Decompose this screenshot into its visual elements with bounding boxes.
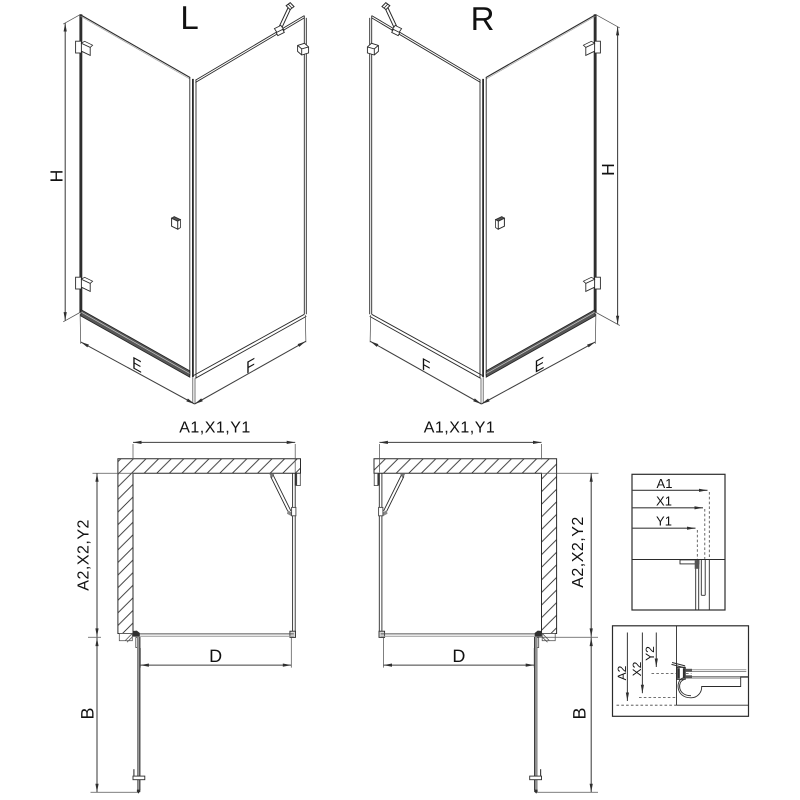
svg-text:Y1: Y1 [656, 514, 672, 529]
svg-text:F: F [422, 354, 431, 378]
svg-text:F: F [246, 354, 255, 378]
svg-text:D: D [209, 646, 222, 666]
svg-text:E: E [535, 353, 545, 377]
svg-text:E: E [132, 353, 142, 377]
svg-text:A1,X1,Y1: A1,X1,Y1 [179, 420, 251, 437]
svg-text:L: L [180, 0, 198, 36]
svg-text:A2,X2,Y2: A2,X2,Y2 [570, 516, 587, 588]
svg-text:A2,X2,Y2: A2,X2,Y2 [76, 519, 93, 591]
svg-text:B: B [570, 707, 590, 719]
svg-text:H: H [598, 163, 618, 176]
svg-text:Y2: Y2 [643, 646, 657, 661]
svg-text:D: D [452, 646, 465, 666]
svg-text:X1: X1 [656, 494, 672, 509]
svg-text:A1: A1 [657, 476, 673, 491]
svg-text:R: R [471, 0, 495, 37]
svg-text:A1,X1,Y1: A1,X1,Y1 [424, 420, 496, 437]
svg-text:B: B [77, 707, 97, 719]
svg-text:X2: X2 [630, 661, 644, 676]
svg-text:A2: A2 [615, 665, 629, 680]
svg-text:H: H [47, 170, 67, 183]
